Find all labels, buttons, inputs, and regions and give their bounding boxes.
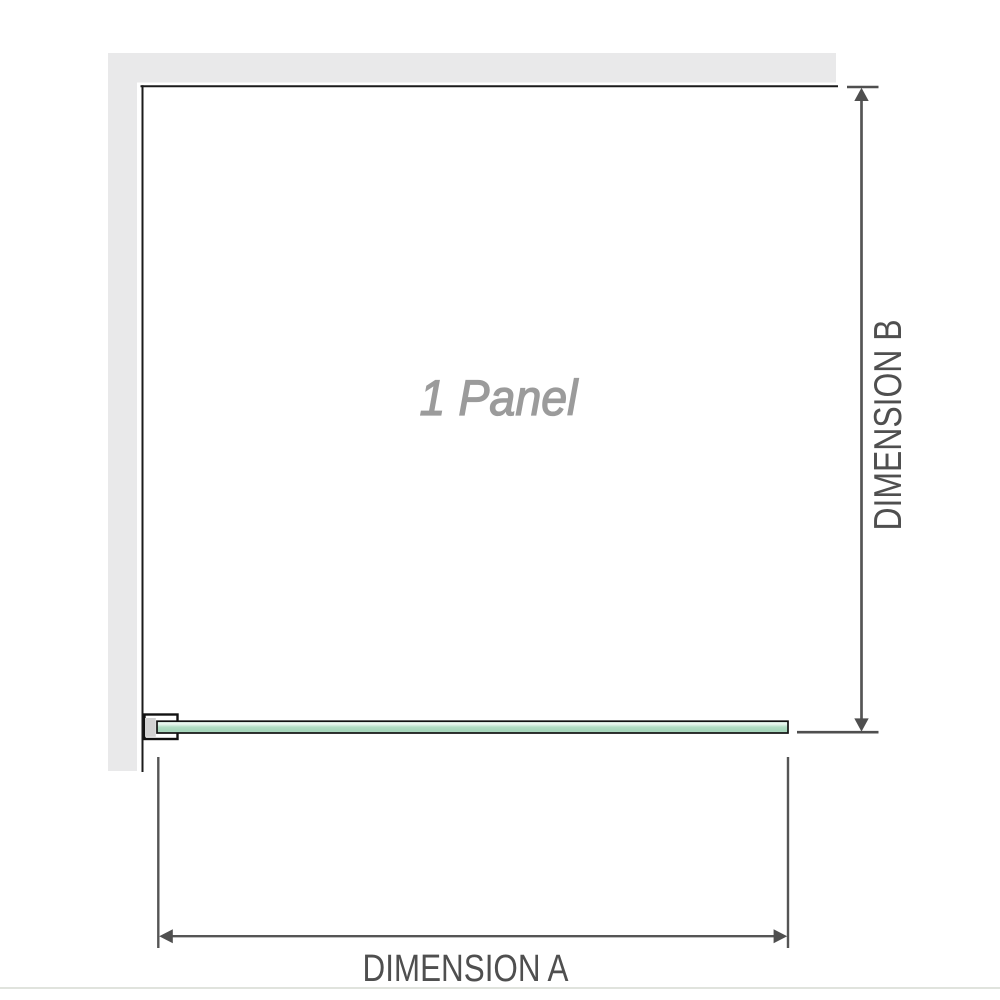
svg-text:DIMENSION A: DIMENSION A bbox=[363, 948, 570, 990]
svg-text:DIMENSION B: DIMENSION B bbox=[867, 320, 910, 531]
svg-text:1 Panel: 1 Panel bbox=[420, 370, 580, 426]
